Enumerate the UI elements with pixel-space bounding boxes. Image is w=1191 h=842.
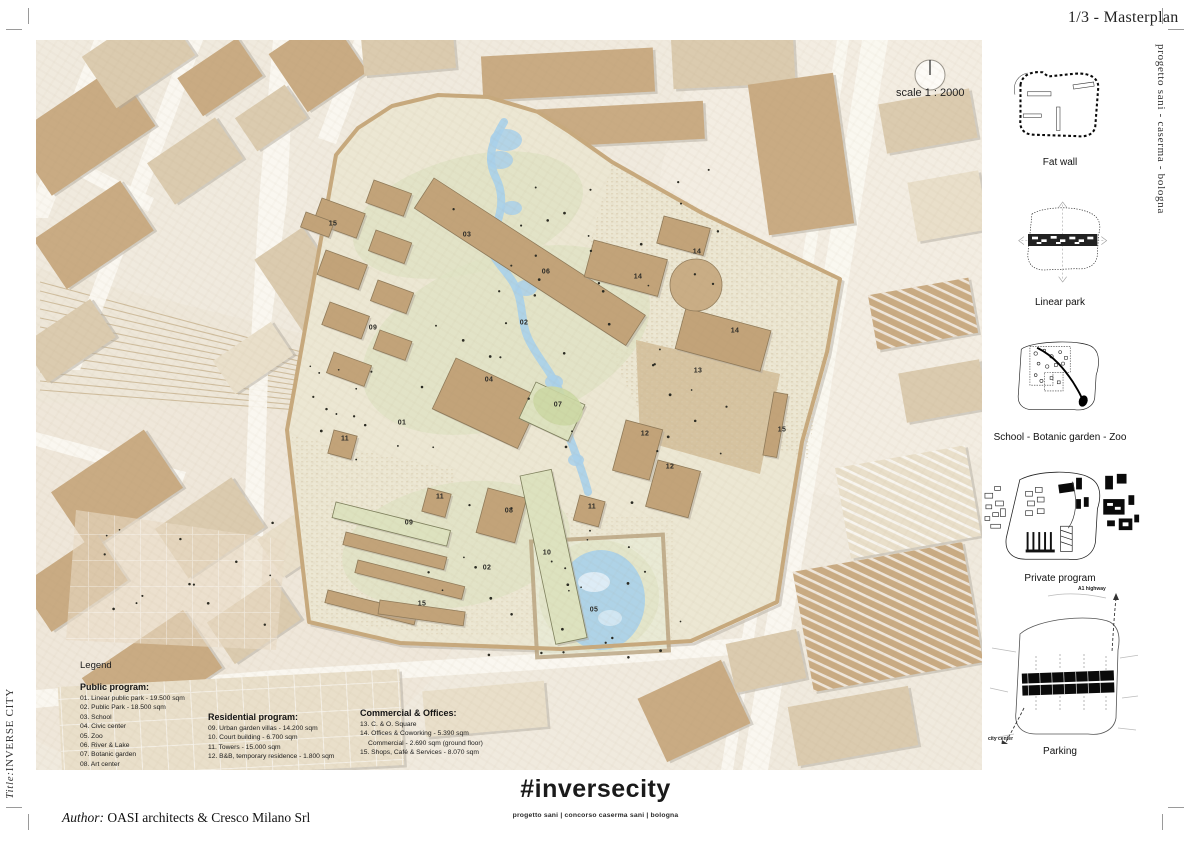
diagram-private-program	[983, 468, 1143, 568]
crop-mark	[6, 807, 22, 808]
north-indicator	[915, 60, 945, 90]
masterplan-map: scale 1 : 2000 1503061414140209130407011…	[36, 40, 982, 770]
legend-item: 01. Linear public park - 19.500 sqm	[80, 694, 185, 703]
legend-commercial-offices: Commercial & Offices:13. C. & O. Square1…	[360, 708, 483, 758]
side-text-project: progetto sani - caserma - bologna	[1155, 44, 1167, 214]
author-line: Author: OASI architects & Cresco Milano …	[62, 810, 310, 826]
map-number-label: 14	[693, 249, 701, 256]
map-number-label: 06	[542, 269, 550, 276]
map-number-label: 03	[463, 232, 471, 239]
map-number-label: 10	[543, 550, 551, 557]
map-number-label: 14	[634, 274, 642, 281]
author-label: Author:	[62, 810, 104, 825]
side-title-value: INVERSE CITY	[4, 688, 16, 771]
map-number-label: 08	[505, 508, 513, 515]
parking-annotation-a1-highway: A1 highway	[1078, 586, 1106, 592]
legend-public-program: Public program:01. Linear public park - …	[80, 682, 185, 769]
crop-mark	[28, 8, 29, 24]
crop-mark	[1168, 29, 1184, 30]
legend-item: 06. River & Lake	[80, 741, 185, 750]
sheet-title: 1/3 - Masterplan	[1068, 9, 1179, 27]
parking-sketch	[988, 588, 1138, 744]
legend-item: 12. B&B, temporary residence - 1.800 sqm	[208, 752, 334, 761]
map-number-label: 15	[329, 221, 337, 228]
diagram-label-fat-wall: Fat wall	[1043, 157, 1077, 168]
legend-item: 02. Public Park - 18.500 sqm	[80, 703, 185, 712]
legend-item: 11. Towers - 15.000 sqm	[208, 743, 334, 752]
map-number-label: 11	[588, 504, 596, 511]
diagram-linear-park	[1012, 194, 1112, 290]
legend-item: 03. School	[80, 713, 185, 722]
diagram-label-linear-park: Linear park	[1035, 297, 1085, 308]
legend-item: 13. C. & O. Square	[360, 720, 483, 729]
legend-heading: Public program:	[80, 682, 185, 692]
school-botanic-zoo-sketch	[1004, 330, 1112, 426]
map-number-label: 05	[590, 607, 598, 614]
legend-item: Commercial - 2.690 sqm (ground floor)	[360, 739, 483, 748]
map-number-label: 12	[641, 431, 649, 438]
legend-item: 04. Civic center	[80, 722, 185, 731]
diagram-label-school-botanic-zoo: School - Botanic garden - Zoo	[994, 432, 1127, 443]
map-number-label: 15	[778, 427, 786, 434]
crop-mark	[6, 29, 22, 30]
map-number-label: 15	[418, 601, 426, 608]
legend-item: 15. Shops, Café & Services - 8.070 sqm	[360, 748, 483, 757]
diagram-fat-wall	[1008, 60, 1112, 154]
diagram-label-private-program: Private program	[1024, 573, 1095, 584]
map-number-label: 14	[731, 328, 739, 335]
project-title: #inversecity	[0, 775, 1191, 804]
legend-heading: Residential program:	[208, 712, 334, 722]
author-value: OASI architects & Cresco Milano Srl	[107, 810, 310, 825]
map-number-label: 02	[483, 565, 491, 572]
masterplan-drawing	[36, 40, 982, 770]
map-number-label: 02	[520, 320, 528, 327]
legend-item: 09. Urban garden villas - 14.200 sqm	[208, 724, 334, 733]
map-number-label: 11	[341, 436, 349, 443]
legend-item: 05. Zoo	[80, 732, 185, 741]
legend-heading: Commercial & Offices:	[360, 708, 483, 718]
map-number-label: 01	[398, 420, 406, 427]
map-number-label: 12	[666, 464, 674, 471]
diagram-school-botanic-zoo	[1004, 330, 1112, 426]
map-number-label: 09	[369, 325, 377, 332]
private-program-sketch	[983, 468, 1143, 568]
crop-mark	[1168, 807, 1184, 808]
map-number-label: 13	[694, 368, 702, 375]
diagram-parking: A1 highway city center	[988, 588, 1138, 744]
legend-item: 07. Botanic garden	[80, 750, 185, 759]
legend-item: 14. Offices & Coworking - 5.390 sqm	[360, 729, 483, 738]
legend-title: Legend	[80, 660, 112, 671]
parking-annotation-city-center: city center	[988, 736, 1013, 742]
map-number-label: 07	[554, 402, 562, 409]
map-number-label: 04	[485, 377, 493, 384]
map-number-label: 09	[405, 520, 413, 527]
diagram-label-parking: Parking	[1043, 746, 1077, 757]
legend-residential-program: Residential program:09. Urban garden vil…	[208, 712, 334, 762]
fat-wall-sketch	[1008, 60, 1112, 154]
legend-item: 10. Court building - 6.700 sqm	[208, 733, 334, 742]
linear-park-sketch	[1012, 194, 1112, 290]
scale-label: scale 1 : 2000	[896, 87, 965, 99]
legend-item: 08. Art center	[80, 760, 185, 769]
map-number-label: 11	[436, 494, 444, 501]
